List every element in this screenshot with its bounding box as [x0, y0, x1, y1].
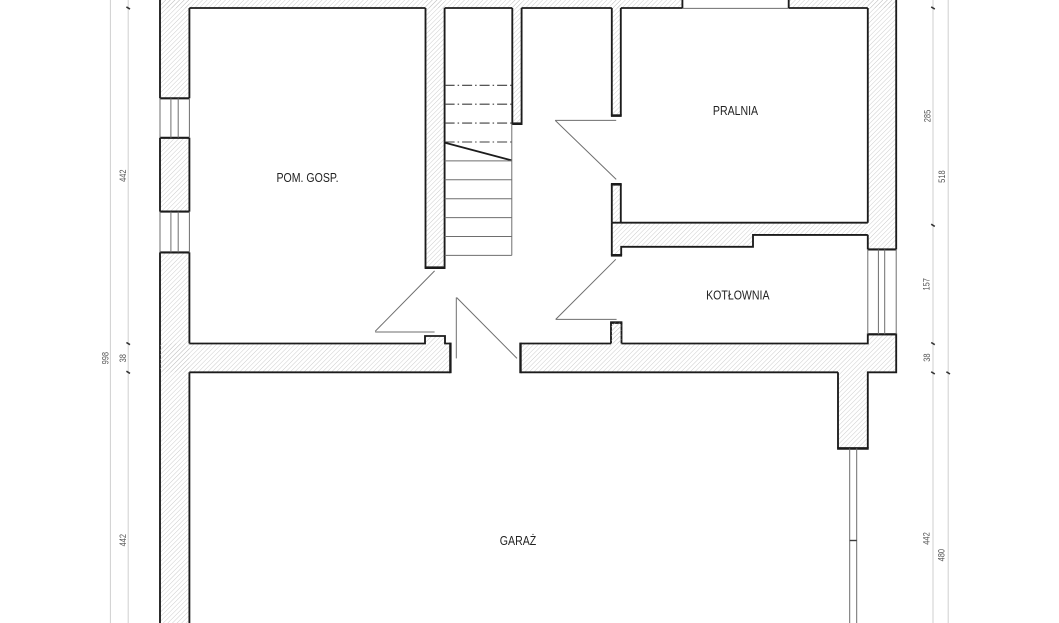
svg-text:38: 38 [921, 353, 932, 362]
svg-text:442: 442 [117, 534, 128, 547]
svg-text:KOTŁOWNIA: KOTŁOWNIA [706, 289, 770, 303]
svg-text:442: 442 [117, 169, 128, 182]
svg-text:157: 157 [921, 278, 932, 291]
svg-text:998: 998 [100, 352, 111, 365]
svg-text:480: 480 [936, 549, 947, 562]
svg-text:285: 285 [922, 109, 933, 122]
svg-text:POM. GOSP.: POM. GOSP. [276, 171, 338, 185]
svg-text:PRALNIA: PRALNIA [713, 104, 758, 118]
svg-text:518: 518 [936, 170, 947, 183]
svg-text:38: 38 [117, 354, 128, 363]
svg-text:442: 442 [921, 532, 932, 545]
svg-text:GARAŻ: GARAŻ [500, 534, 536, 548]
